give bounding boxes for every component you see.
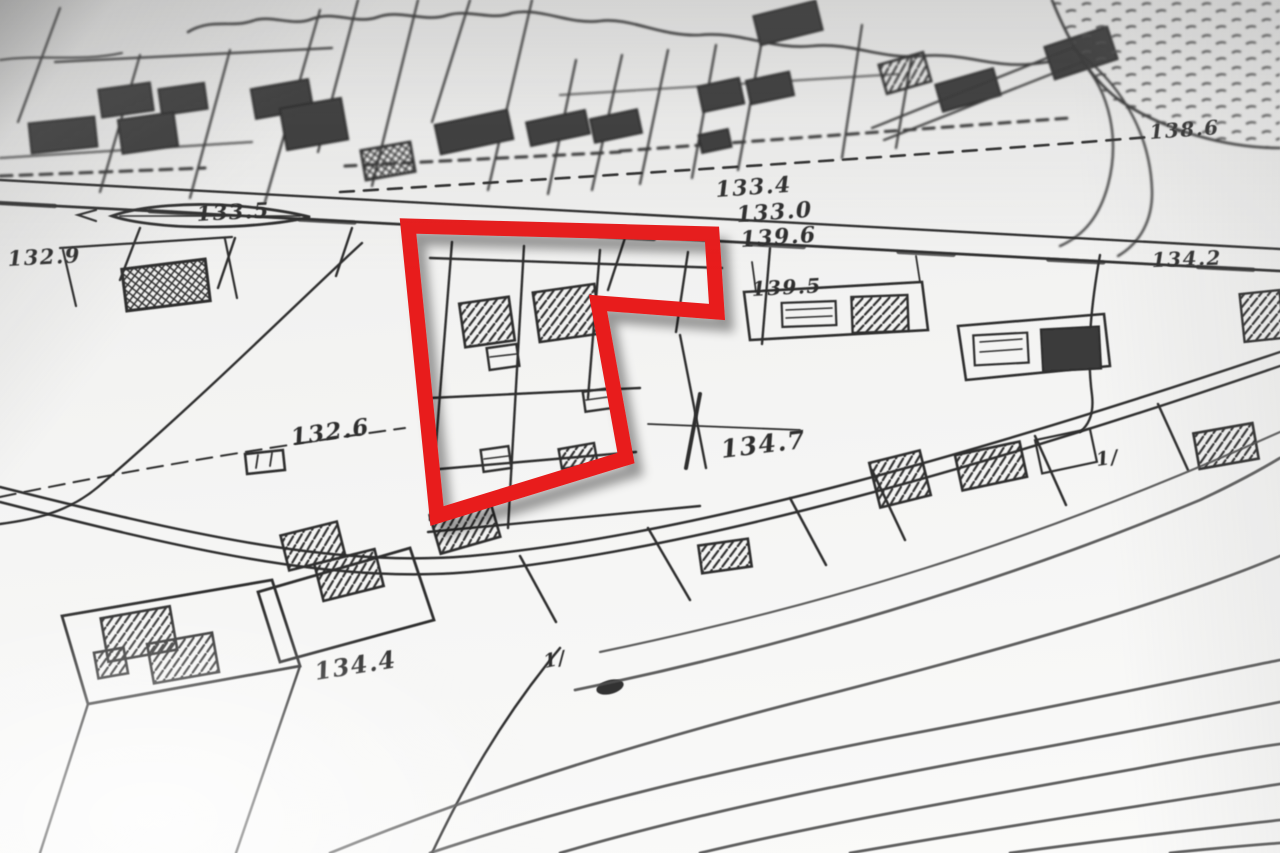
lower-road-upper-edge (0, 352, 1280, 558)
elevation-label: 139.5 (751, 273, 822, 301)
building-compound-2 (958, 314, 1110, 380)
elevation-label: 139.6 (740, 222, 818, 253)
highlighted-parcel-outline (408, 226, 717, 516)
top-scribble-line (188, 12, 1058, 65)
elevation-label: 134.7 (719, 425, 808, 464)
elevation-label: 132.9 (7, 242, 81, 271)
main-road-and-mid-band (0, 137, 1280, 524)
cadastral-map-photo: 133.5 132.9 133.4 133.0 139.6 139.5 138.… (0, 0, 1280, 853)
elevation-label: 138.6 (1149, 115, 1221, 144)
highlighted-parcel (408, 226, 717, 516)
elevation-label: 132.6 (289, 413, 372, 451)
crosshatched-building-left (60, 237, 237, 311)
survey-mark: 1/ (1095, 446, 1122, 471)
gate-symbol (245, 450, 285, 474)
cadastral-map-svg: 133.5 132.9 133.4 133.0 139.6 139.5 138.… (0, 0, 1280, 853)
elevation-label: 133.5 (196, 197, 270, 226)
survey-mark: 1/ (541, 646, 569, 672)
elevation-label: 134.2 (1151, 246, 1222, 272)
top-buildings-band (0, 0, 1280, 256)
